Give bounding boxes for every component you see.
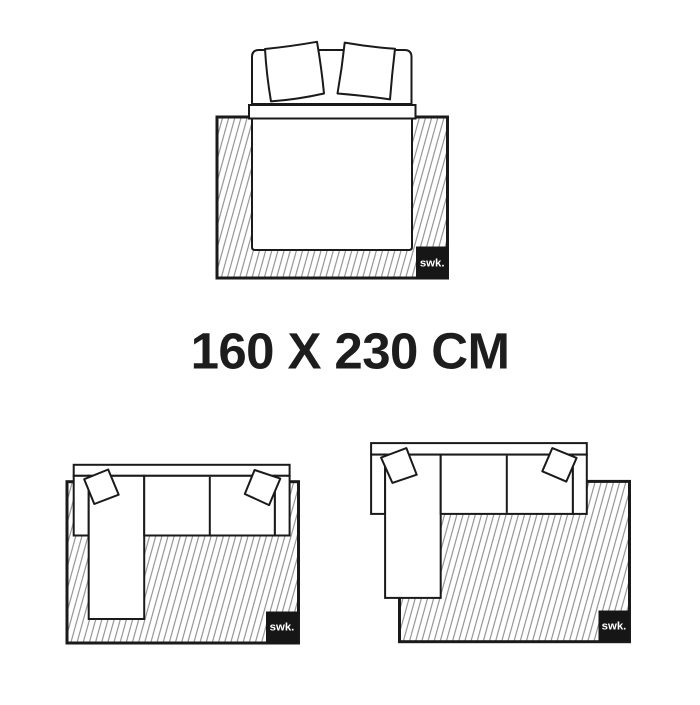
svg-text:swk.: swk.	[270, 622, 295, 634]
svg-text:swk.: swk.	[420, 258, 445, 270]
svg-text:160 X 230 CM: 160 X 230 CM	[191, 323, 510, 380]
svg-text:swk.: swk.	[602, 621, 627, 633]
